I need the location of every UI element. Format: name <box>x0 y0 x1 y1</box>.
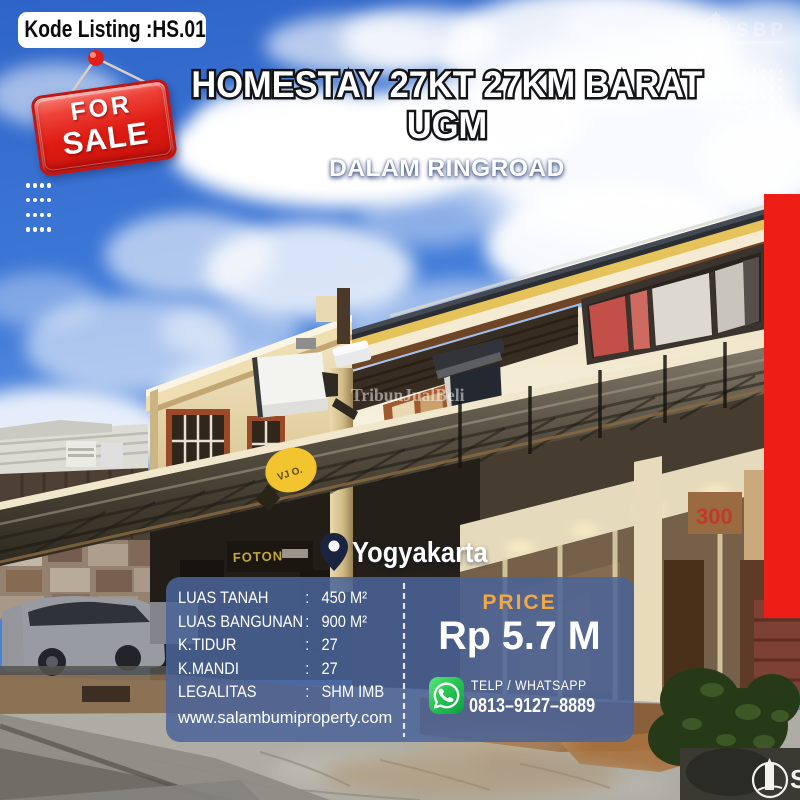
svg-text:FOTON: FOTON <box>233 548 284 565</box>
svg-text:S: S <box>790 764 800 794</box>
svg-text:SBP: SBP <box>736 20 787 41</box>
svg-text:300: 300 <box>696 504 733 529</box>
